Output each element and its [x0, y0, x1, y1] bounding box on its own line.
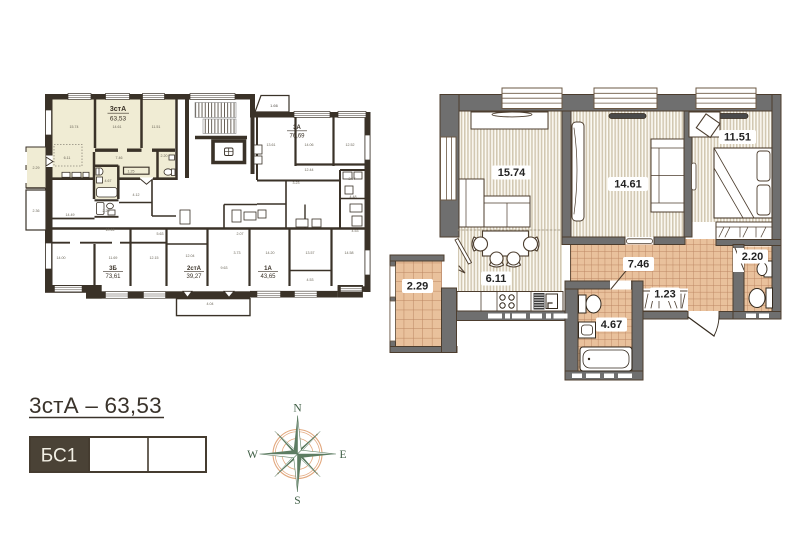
svg-text:7.46: 7.46	[628, 259, 649, 271]
svg-text:11.69: 11.69	[109, 256, 118, 260]
svg-text:2.20: 2.20	[161, 154, 168, 158]
svg-text:13.57: 13.57	[306, 251, 315, 255]
svg-text:2.36: 2.36	[33, 209, 40, 213]
svg-text:7.46: 7.46	[116, 156, 123, 160]
svg-text:1.23: 1.23	[654, 289, 675, 301]
svg-text:2.26: 2.26	[103, 209, 110, 213]
svg-text:14.00: 14.00	[57, 256, 66, 260]
svg-text:W: W	[247, 449, 258, 461]
svg-text:6.11: 6.11	[64, 156, 71, 160]
svg-text:14.20: 14.20	[266, 251, 275, 255]
svg-text:5.63: 5.63	[157, 232, 164, 236]
svg-text:2.29: 2.29	[407, 281, 428, 293]
svg-text:4.67: 4.67	[601, 319, 622, 331]
svg-text:6.11: 6.11	[486, 273, 507, 285]
svg-text:12.04: 12.04	[186, 254, 195, 258]
svg-text:76,69: 76,69	[289, 134, 305, 140]
svg-text:11.51: 11.51	[724, 132, 751, 144]
svg-text:4.12: 4.12	[133, 193, 140, 197]
svg-text:73,61: 73,61	[105, 274, 121, 280]
svg-text:4.48: 4.48	[350, 195, 357, 199]
svg-text:15.74: 15.74	[70, 125, 79, 129]
svg-text:2.07: 2.07	[237, 232, 244, 236]
svg-text:2.17: 2.17	[349, 177, 356, 181]
svg-text:13.61: 13.61	[267, 143, 276, 147]
svg-text:3стА: 3стА	[110, 106, 126, 113]
svg-text:S: S	[294, 495, 300, 507]
svg-text:14.61: 14.61	[614, 179, 642, 191]
svg-text:2.29: 2.29	[33, 166, 40, 170]
svg-text:39,27: 39,27	[186, 274, 202, 280]
svg-text:14.58: 14.58	[345, 251, 354, 255]
svg-text:3стА – 63,53: 3стА – 63,53	[29, 393, 162, 418]
svg-text:3А: 3А	[293, 125, 301, 131]
svg-text:4.53: 4.53	[352, 229, 359, 233]
svg-text:63,53: 63,53	[110, 116, 127, 123]
svg-text:1.25: 1.25	[128, 170, 135, 174]
svg-text:12.15: 12.15	[150, 256, 159, 260]
svg-text:11.51: 11.51	[152, 125, 161, 129]
svg-text:1.66: 1.66	[270, 103, 279, 108]
svg-text:3.23: 3.23	[293, 181, 300, 185]
svg-text:43,65: 43,65	[260, 274, 276, 280]
svg-text:3.73: 3.73	[234, 251, 241, 255]
svg-text:10.44: 10.44	[106, 228, 115, 232]
svg-text:N: N	[293, 403, 302, 415]
svg-text:12.44: 12.44	[305, 168, 314, 172]
svg-text:12.52: 12.52	[346, 143, 355, 147]
svg-text:14.06: 14.06	[305, 143, 314, 147]
svg-text:14.49: 14.49	[66, 213, 75, 217]
svg-text:4.53: 4.53	[307, 278, 314, 282]
svg-text:14.61: 14.61	[113, 125, 122, 129]
svg-text:4.04: 4.04	[207, 302, 214, 306]
svg-text:2.20: 2.20	[742, 251, 763, 263]
svg-text:9.63: 9.63	[221, 266, 228, 270]
svg-text:15.74: 15.74	[498, 167, 526, 179]
svg-text:E: E	[339, 449, 346, 461]
svg-text:БС1: БС1	[41, 446, 78, 467]
svg-text:4.67: 4.67	[105, 179, 112, 183]
